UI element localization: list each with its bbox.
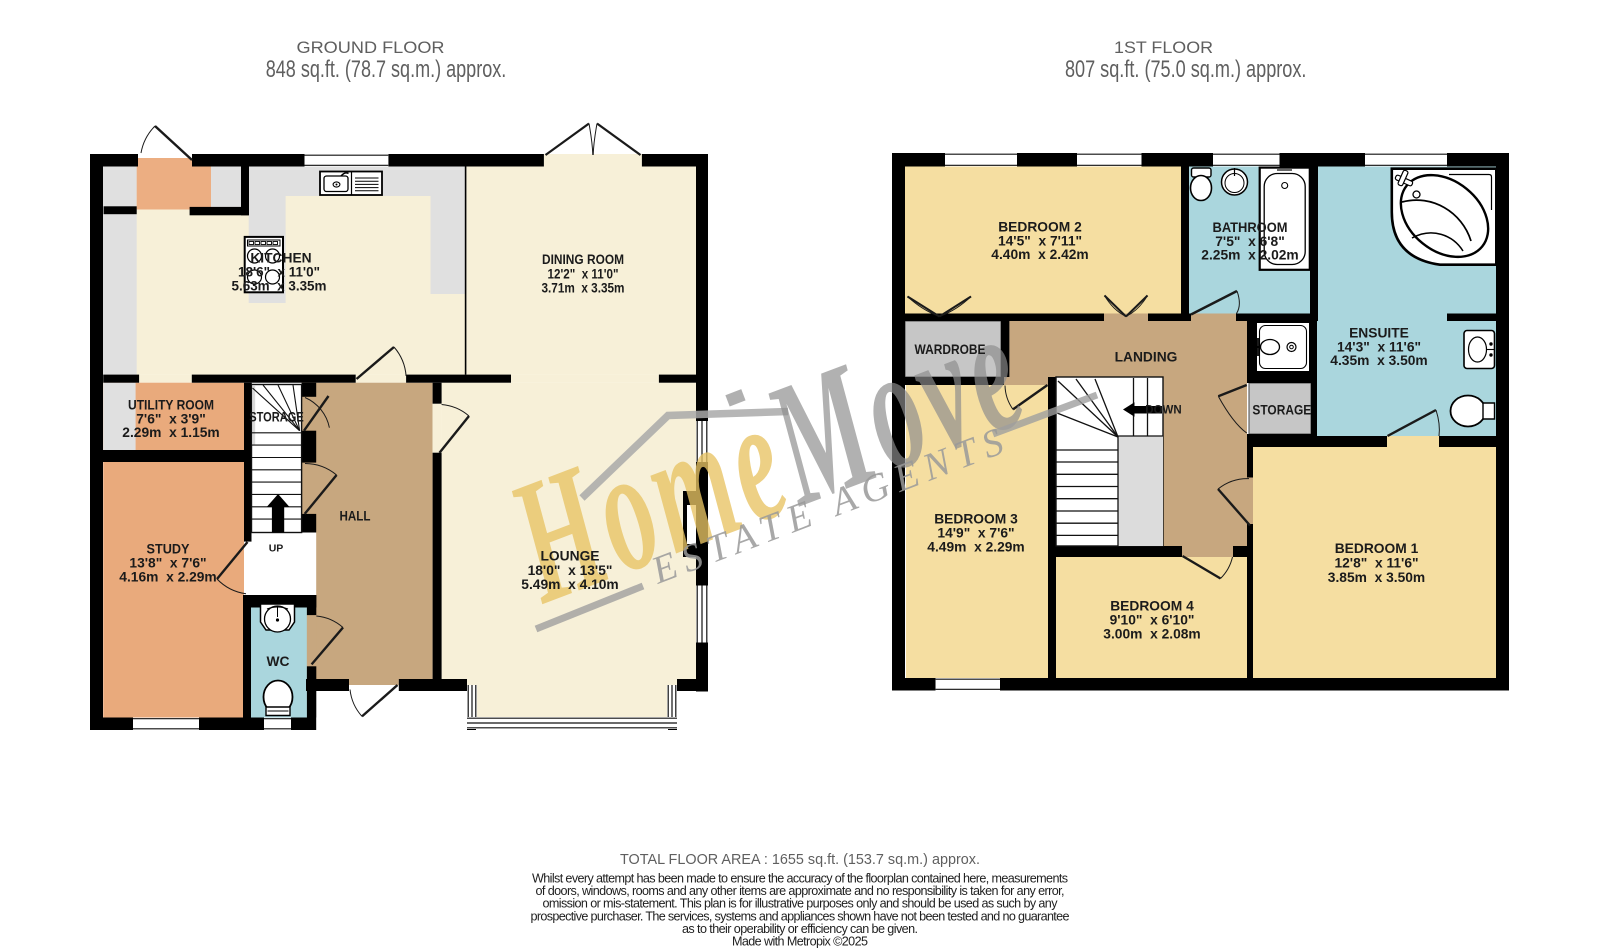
svg-text:5.63m x 3.35m: 5.63m x 3.35m <box>232 279 327 294</box>
svg-text:BEDROOM 3: BEDROOM 3 <box>934 512 1018 527</box>
svg-text:9'10" x 6'10": 9'10" x 6'10" <box>1110 613 1195 628</box>
svg-text:4.16m x 2.29m: 4.16m x 2.29m <box>119 570 216 585</box>
svg-text:807 sq.ft. (75.0 sq.m.) approx: 807 sq.ft. (75.0 sq.m.) approx. <box>1065 56 1307 83</box>
svg-text:848 sq.ft. (78.7 sq.m.) approx: 848 sq.ft. (78.7 sq.m.) approx. <box>266 56 507 83</box>
svg-text:STUDY: STUDY <box>147 542 190 557</box>
svg-text:WC: WC <box>267 654 290 669</box>
svg-text:HALL: HALL <box>340 509 371 524</box>
svg-text:2.29m x 1.15m: 2.29m x 1.15m <box>122 425 219 440</box>
svg-text:Made with Metropix ©2025: Made with Metropix ©2025 <box>732 935 868 949</box>
svg-text:UTILITY ROOM: UTILITY ROOM <box>128 398 214 413</box>
svg-text:18'6" x 11'0": 18'6" x 11'0" <box>238 265 320 280</box>
svg-text:3.00m x 2.08m: 3.00m x 2.08m <box>1103 627 1200 642</box>
svg-text:STORAGE: STORAGE <box>1252 403 1311 418</box>
svg-text:13'8" x 7'6": 13'8" x 7'6" <box>129 556 206 571</box>
svg-text:WARDROBE: WARDROBE <box>915 342 986 357</box>
svg-text:DINING ROOM: DINING ROOM <box>542 252 624 267</box>
svg-text:ENSUITE: ENSUITE <box>1349 326 1409 341</box>
svg-text:12'8" x 11'6": 12'8" x 11'6" <box>1334 556 1418 571</box>
svg-text:1ST FLOOR: 1ST FLOOR <box>1114 38 1213 57</box>
svg-text:BEDROOM 1: BEDROOM 1 <box>1335 541 1419 556</box>
svg-text:BEDROOM 4: BEDROOM 4 <box>1110 599 1194 614</box>
svg-text:GROUND FLOOR: GROUND FLOOR <box>297 38 445 57</box>
svg-text:2.25m x 2.02m: 2.25m x 2.02m <box>1201 248 1298 263</box>
svg-text:BEDROOM 2: BEDROOM 2 <box>998 220 1082 235</box>
svg-text:3.71m x 3.35m: 3.71m x 3.35m <box>542 281 625 296</box>
svg-text:14'9" x 7'6": 14'9" x 7'6" <box>937 526 1014 541</box>
svg-text:UP: UP <box>269 543 284 555</box>
svg-text:STORAGE: STORAGE <box>249 410 304 425</box>
svg-text:18'0" x 13'5": 18'0" x 13'5" <box>528 563 613 578</box>
svg-text:4.35m x 3.50m: 4.35m x 3.50m <box>1330 353 1427 368</box>
svg-text:TOTAL FLOOR AREA : 1655 sq.ft.: TOTAL FLOOR AREA : 1655 sq.ft. (153.7 sq… <box>620 852 980 868</box>
svg-text:DOWN: DOWN <box>1145 405 1181 417</box>
svg-text:4.49m x 2.29m: 4.49m x 2.29m <box>927 540 1024 555</box>
svg-text:12'2" x 11'0": 12'2" x 11'0" <box>548 267 619 282</box>
svg-text:5.49m x 4.10m: 5.49m x 4.10m <box>521 577 618 592</box>
svg-text:3.85m x 3.50m: 3.85m x 3.50m <box>1328 570 1425 585</box>
svg-text:BATHROOM: BATHROOM <box>1213 220 1288 235</box>
svg-text:LANDING: LANDING <box>1115 350 1178 365</box>
svg-text:4.40m x 2.42m: 4.40m x 2.42m <box>991 247 1088 262</box>
svg-text:KITCHEN: KITCHEN <box>250 251 311 266</box>
svg-text:LOUNGE: LOUNGE <box>540 549 599 564</box>
